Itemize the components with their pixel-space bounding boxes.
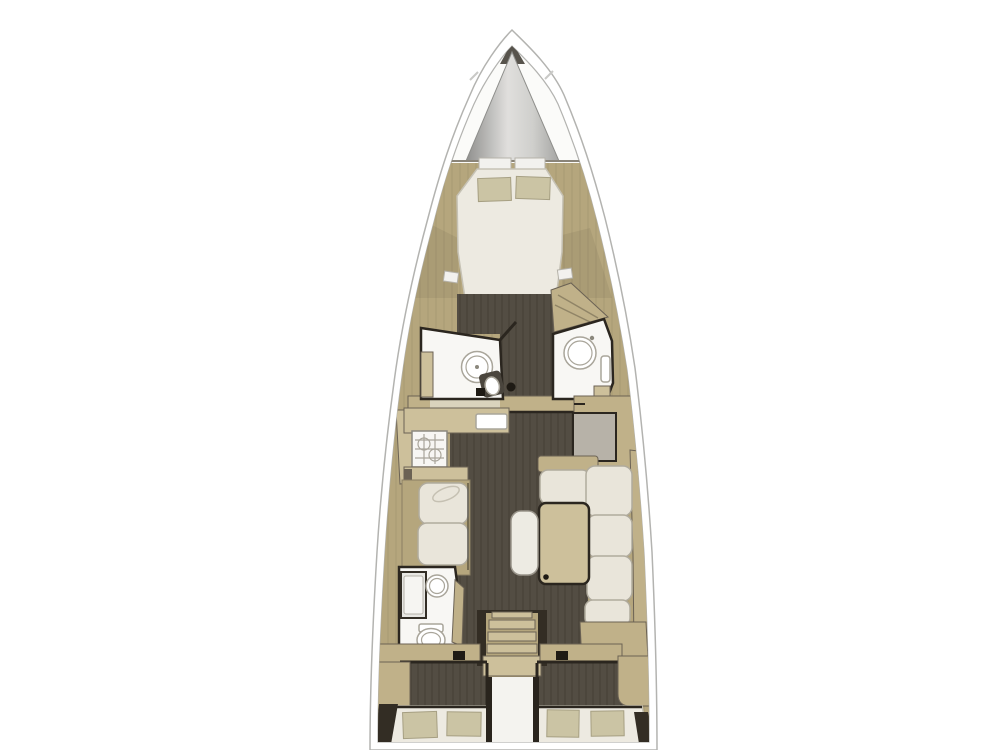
aft-cabin-starboard-floor bbox=[537, 663, 623, 710]
counter-highlight bbox=[430, 400, 500, 408]
stair-tread bbox=[488, 632, 536, 641]
walkway-floor bbox=[492, 677, 533, 750]
sofa-cushion bbox=[587, 515, 632, 557]
stove bbox=[412, 431, 447, 467]
shower-drain bbox=[475, 365, 479, 369]
port-settee bbox=[402, 480, 470, 575]
walkway-wall-port bbox=[486, 677, 492, 750]
table-leg-dot bbox=[543, 574, 549, 580]
vanity-shelf bbox=[421, 352, 433, 397]
sofa-cushion bbox=[540, 470, 590, 504]
forward-head-starboard bbox=[553, 319, 613, 399]
pillow bbox=[547, 710, 579, 738]
pillow bbox=[403, 711, 438, 738]
side-shelf-left bbox=[443, 271, 458, 283]
settee-cushion bbox=[418, 523, 468, 565]
galley-sink bbox=[476, 414, 507, 429]
peninsula-end bbox=[404, 469, 412, 480]
chart-table bbox=[573, 413, 616, 461]
quarter-locker-starboard bbox=[618, 656, 652, 706]
deck-hatch-right bbox=[515, 158, 545, 170]
stair-tread bbox=[492, 612, 532, 618]
round-basin bbox=[564, 337, 596, 369]
sofa-cushion bbox=[587, 556, 632, 601]
aft-walkway bbox=[486, 677, 539, 750]
sofa-corner-cushion bbox=[586, 466, 632, 516]
center-stool bbox=[511, 511, 538, 575]
mast-compression-post bbox=[507, 383, 516, 392]
pillow bbox=[447, 712, 481, 737]
stair-tread bbox=[489, 620, 535, 629]
door-threshold-port bbox=[453, 651, 465, 660]
walkway-wall-starboard bbox=[533, 677, 539, 750]
yacht-layout-page bbox=[0, 0, 1000, 750]
basin-tap bbox=[590, 336, 594, 340]
head-step bbox=[594, 386, 610, 397]
stair-tread-bottom bbox=[483, 656, 541, 676]
pillow bbox=[591, 711, 624, 737]
pillow bbox=[478, 177, 512, 201]
yacht-layout-diagram bbox=[0, 0, 1000, 750]
wall-cabinet bbox=[601, 356, 610, 382]
aft-bulkhead-starboard bbox=[540, 644, 622, 663]
side-shelf-right bbox=[557, 268, 572, 280]
galley-peninsula bbox=[404, 467, 468, 481]
stair-tread bbox=[487, 644, 537, 653]
door-stop bbox=[476, 388, 485, 396]
door-threshold-starboard bbox=[556, 651, 568, 660]
salon-table bbox=[539, 503, 589, 584]
shower-stall-inner bbox=[404, 576, 423, 614]
pillow bbox=[516, 176, 551, 199]
interior bbox=[370, 42, 660, 750]
